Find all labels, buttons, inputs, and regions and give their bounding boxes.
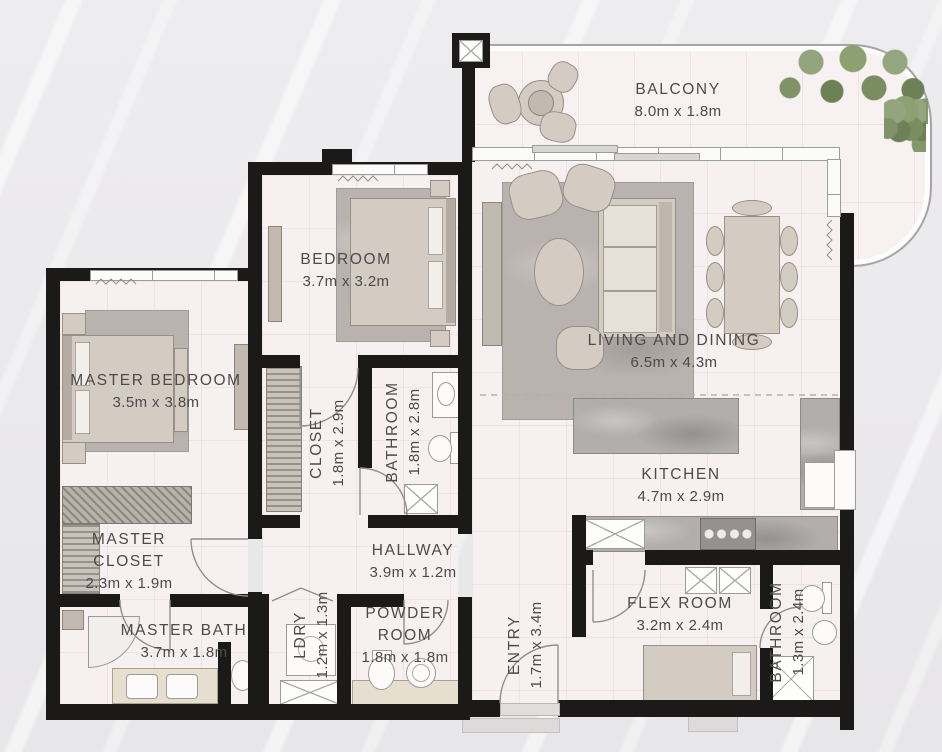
master-bath-sink bbox=[126, 674, 158, 699]
column-shaft-box bbox=[459, 40, 483, 62]
wall-left-outer bbox=[46, 268, 60, 720]
room-dims: 3.2m x 2.4m bbox=[627, 615, 733, 637]
kitchen-sink-cabinet bbox=[585, 519, 645, 549]
sofa-cushion bbox=[603, 205, 657, 247]
room-label-laundry: LDRY 1.2m x 1.3m bbox=[290, 592, 334, 679]
wall-bedwing-left-upper bbox=[248, 162, 262, 539]
dining-chair bbox=[706, 298, 724, 328]
room-dims: 1.8m x 2.9m bbox=[328, 400, 350, 487]
wall-masterbath-top-b bbox=[170, 594, 260, 607]
room-dims: 1.8m x 2.8m bbox=[404, 381, 426, 482]
room-label-closet: CLOSET 1.8m x 2.9m bbox=[306, 400, 350, 487]
wall-bottom-entry-piece bbox=[460, 700, 500, 717]
wall-kitchen-bottom-a bbox=[572, 550, 593, 565]
room-label-bathroom-2: BATHROOM 1.3m x 2.4m bbox=[766, 581, 810, 682]
flex-step bbox=[688, 716, 738, 732]
master-bath-cabinet bbox=[62, 610, 84, 630]
bathroom-shower bbox=[404, 484, 438, 514]
room-dims: 2.3m x 1.9m bbox=[79, 573, 179, 595]
pillow bbox=[428, 207, 443, 255]
wall-closet-bottom bbox=[262, 515, 300, 528]
dining-chair bbox=[780, 298, 798, 328]
room-label-balcony: BALCONY 8.0m x 1.8m bbox=[635, 79, 722, 123]
room-label-master-bath: MASTER BATH 3.7m x 1.8m bbox=[121, 620, 248, 664]
room-dims: 3.9m x 1.2m bbox=[370, 562, 457, 584]
room-label-master-bedroom: MASTER BEDROOM 3.5m x 3.8m bbox=[70, 370, 241, 414]
bathroom-toilet bbox=[428, 435, 452, 462]
stove bbox=[700, 518, 756, 550]
wall-entry-left bbox=[458, 597, 472, 707]
utility-shaft bbox=[719, 567, 751, 594]
room-name: MASTER BEDROOM bbox=[70, 370, 241, 392]
wall-kitchen-entry bbox=[572, 515, 586, 637]
headboard bbox=[446, 199, 455, 323]
master-closet-rack-top bbox=[62, 486, 192, 524]
room-name: BEDROOM bbox=[300, 249, 391, 271]
room-name: MASTER BATH bbox=[121, 620, 248, 642]
room-dims: 1.2m x 1.3m bbox=[312, 592, 334, 679]
corner-window bbox=[827, 159, 841, 217]
floor-plan-canvas: BALCONY 8.0m x 1.8m BEDROOM 3.7m x 3.2m … bbox=[0, 0, 942, 752]
sliding-door-panel bbox=[614, 153, 700, 161]
room-label-entry: ENTRY 1.7m x 3.4m bbox=[504, 602, 548, 689]
bedroom-nightstand bbox=[430, 330, 450, 347]
utility-shaft bbox=[685, 567, 717, 594]
sliding-door-panel bbox=[532, 145, 618, 153]
wall-closet-bath-divider bbox=[358, 368, 372, 468]
bedroom-window bbox=[332, 164, 428, 175]
bedroom-nightstand bbox=[430, 180, 450, 197]
greenery-plants-corner bbox=[884, 96, 926, 152]
room-label-flex-room: FLEX ROOM 3.2m x 2.4m bbox=[627, 593, 733, 637]
room-name: FLEX ROOM bbox=[627, 593, 733, 615]
master-bath-sink bbox=[166, 674, 198, 699]
room-name: BATHROOM bbox=[766, 581, 788, 682]
wall-bedroom-bottom-b bbox=[358, 355, 472, 368]
pillow bbox=[428, 261, 443, 309]
tv-console bbox=[482, 202, 502, 346]
room-label-bathroom: BATHROOM 1.8m x 2.8m bbox=[382, 381, 426, 482]
dining-chair bbox=[732, 200, 772, 216]
room-name: CLOSET bbox=[306, 400, 328, 487]
room-dims: 3.5m x 3.8m bbox=[70, 392, 241, 414]
room-dims: 3.7m x 3.2m bbox=[300, 271, 391, 293]
master-nightstand bbox=[62, 442, 86, 464]
room-dims: 3.7m x 1.8m bbox=[121, 642, 248, 664]
kitchen-appliance bbox=[804, 462, 836, 508]
master-nightstand bbox=[62, 313, 86, 335]
room-label-kitchen: KITCHEN 4.7m x 2.9m bbox=[638, 464, 725, 508]
wall-ldry-powder-divider bbox=[337, 594, 351, 706]
master-bedroom-window bbox=[90, 270, 238, 281]
closet-rack bbox=[266, 366, 302, 512]
room-name: BATHROOM bbox=[382, 381, 404, 482]
dining-chair bbox=[706, 262, 724, 292]
sofa-cushion bbox=[603, 291, 657, 333]
entry-threshold bbox=[500, 703, 560, 716]
room-dims: 1.8m x 1.8m bbox=[350, 647, 460, 669]
room-name: ENTRY bbox=[504, 602, 526, 689]
room-label-master-closet: MASTER CLOSET 2.3m x 1.9m bbox=[79, 529, 179, 595]
dining-table bbox=[724, 216, 780, 334]
fridge bbox=[834, 450, 856, 510]
coffee-table bbox=[534, 238, 584, 306]
dining-chair bbox=[780, 262, 798, 292]
room-name: MASTER CLOSET bbox=[79, 529, 179, 573]
wall-bedwing-right-upper bbox=[458, 162, 472, 534]
sofa-cushion bbox=[603, 247, 657, 291]
room-label-hallway: HALLWAY 3.9m x 1.2m bbox=[370, 540, 457, 584]
room-label-powder-room: POWDER ROOM 1.8m x 1.8m bbox=[350, 603, 460, 669]
wall-notch bbox=[322, 149, 352, 164]
room-label-bedroom: BEDROOM 3.7m x 3.2m bbox=[300, 249, 391, 293]
pillow bbox=[732, 652, 751, 696]
powder-counter bbox=[352, 680, 460, 705]
wall-kitchen-bottom-b bbox=[645, 550, 854, 565]
wall-bedroom-bottom-a bbox=[262, 355, 300, 368]
dining-chair bbox=[780, 226, 798, 256]
entry-step bbox=[462, 718, 560, 733]
bathroom-sink bbox=[437, 382, 455, 406]
wall-bathroom-bottom bbox=[368, 515, 472, 528]
room-dims: 1.7m x 3.4m bbox=[526, 602, 548, 689]
room-dims: 1.3m x 2.4m bbox=[788, 581, 810, 682]
room-label-living-dining: LIVING AND DINING 6.5m x 4.3m bbox=[588, 330, 761, 374]
room-dims: 4.7m x 2.9m bbox=[638, 486, 725, 508]
flex-daybed bbox=[643, 645, 757, 703]
bedroom-tv-unit bbox=[268, 226, 282, 322]
laundry-counter bbox=[280, 680, 340, 705]
wall-bath-ldry-divider bbox=[255, 594, 269, 706]
room-name: KITCHEN bbox=[638, 464, 725, 486]
sofa-back bbox=[659, 202, 672, 332]
room-name: LIVING AND DINING bbox=[588, 330, 761, 352]
room-name: BALCONY bbox=[635, 79, 722, 101]
wall-masterbath-top-a bbox=[60, 594, 120, 607]
bathroom2-sink bbox=[812, 620, 837, 645]
room-name: HALLWAY bbox=[370, 540, 457, 562]
room-dims: 8.0m x 1.8m bbox=[635, 101, 722, 123]
wall-bottom-left bbox=[46, 704, 470, 720]
room-name: LDRY bbox=[290, 592, 312, 679]
room-dims: 6.5m x 4.3m bbox=[588, 352, 761, 374]
wall-bottom-right bbox=[558, 700, 854, 717]
kitchen-island bbox=[573, 398, 739, 454]
sofa bbox=[598, 198, 676, 338]
room-name: POWDER ROOM bbox=[350, 603, 460, 647]
dining-chair bbox=[706, 226, 724, 256]
